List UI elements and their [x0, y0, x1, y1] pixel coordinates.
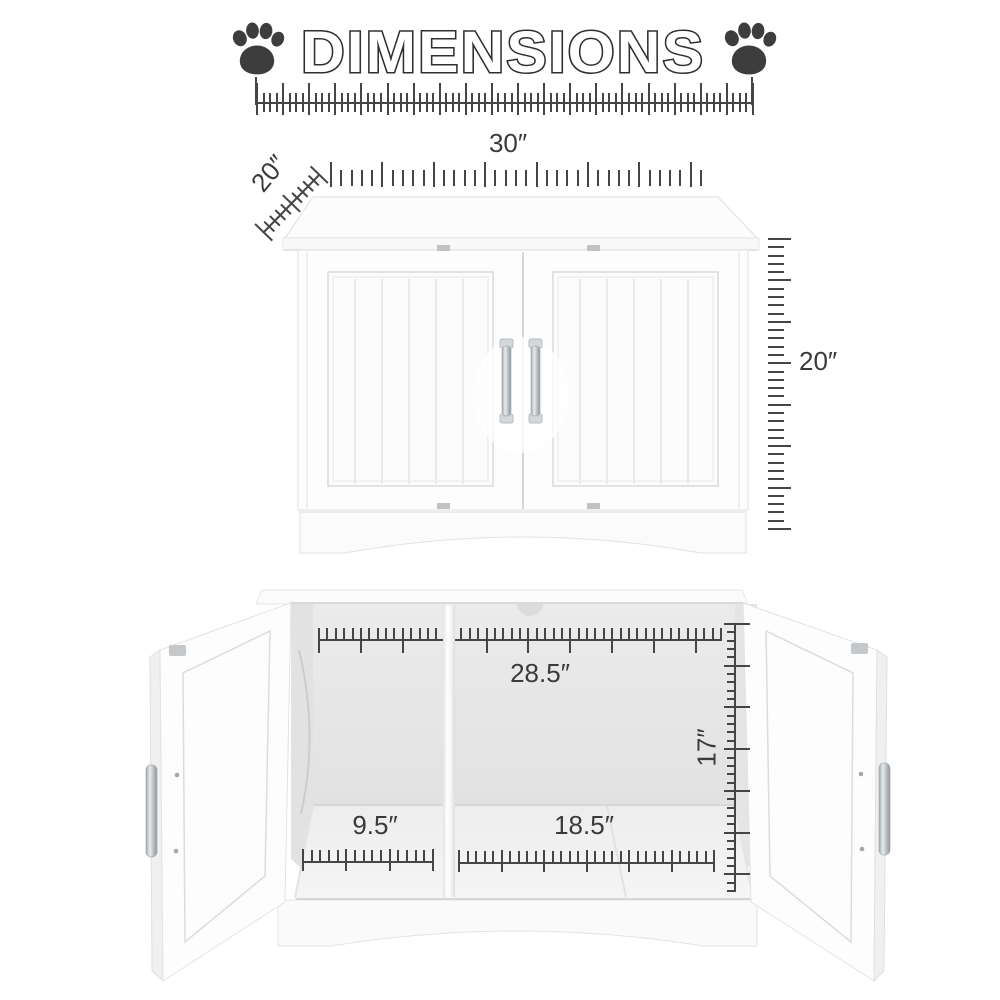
interior-back-panel: [313, 604, 735, 805]
open-base-apron: [278, 900, 757, 946]
interior-width-label: 28.5″: [494, 658, 586, 689]
interior-height-label: 17″: [692, 713, 723, 783]
page-title: DIMENSIONS: [293, 6, 713, 96]
cabinet-closed: [283, 197, 759, 553]
cabinet-top-surface: [285, 197, 757, 238]
open-door-handle-right-icon: [879, 763, 890, 855]
open-right-door: [743, 603, 890, 981]
cabinet-open: [146, 590, 890, 981]
closed-left-door: [328, 272, 493, 486]
closed-right-door: [553, 272, 718, 486]
left-compartment-label: 9.5″: [337, 810, 413, 841]
paw-icon: [720, 22, 778, 78]
paw-icon: [228, 22, 286, 78]
cabinet-top-front-edge: [283, 238, 759, 250]
title-ruler-right-post: [751, 77, 753, 105]
closed-door-handle-left-icon: [500, 339, 513, 423]
dimensions-infographic: DIMENSIONS 30″ 20″ 20″ 28.5″ 17″ 9.5″ 18…: [0, 0, 1000, 1000]
title-ruler-left-post: [255, 77, 257, 105]
title-text: DIMENSIONS: [301, 20, 705, 85]
door-hinge-icon: [169, 645, 186, 656]
open-door-handle-left-icon: [146, 765, 157, 857]
open-top-slab: [256, 590, 748, 604]
width-label: 30″: [470, 128, 546, 159]
interior-divider-panel: [443, 605, 455, 897]
right-compartment-label: 18.5″: [538, 810, 630, 841]
height-label: 20″: [799, 346, 859, 377]
closed-door-handle-right-icon: [529, 339, 542, 423]
door-hinge-icon: [851, 643, 868, 654]
cabinet-base: [300, 510, 746, 553]
open-left-door: [146, 603, 291, 981]
